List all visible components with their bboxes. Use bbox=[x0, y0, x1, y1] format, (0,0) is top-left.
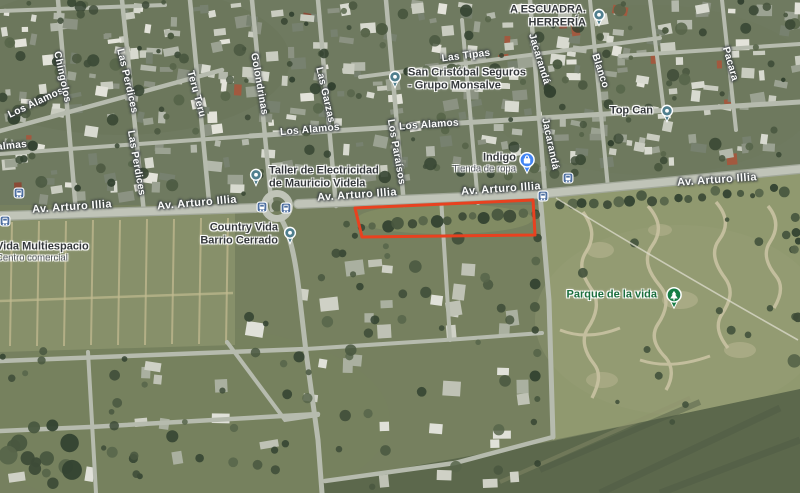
street-label: almas bbox=[0, 139, 28, 153]
place-marker-icon[interactable] bbox=[592, 8, 607, 27]
poi-label-country-vida[interactable]: Country VidaBarrio Cerrado bbox=[200, 221, 278, 246]
street-label: Los Alamos bbox=[280, 122, 341, 138]
street-label: Golondrinas bbox=[248, 52, 270, 116]
bus-stop-icon[interactable] bbox=[257, 202, 268, 213]
poi-label-top-can[interactable]: Top Can bbox=[610, 105, 653, 118]
street-label: Av. Arturo Illia bbox=[677, 171, 758, 189]
poi-label-indigo[interactable]: IndigoTienda de ropa bbox=[452, 151, 516, 174]
bus-stop-icon[interactable] bbox=[281, 203, 292, 214]
shopping-marker-icon[interactable] bbox=[518, 151, 537, 174]
street-label: Las Perdices bbox=[125, 130, 147, 197]
place-marker-icon[interactable] bbox=[660, 104, 675, 123]
place-marker-icon[interactable] bbox=[388, 70, 403, 89]
street-label: Los Alamos bbox=[399, 117, 459, 132]
poi-label-san-cristobal-seguros[interactable]: San Cristóbal Seguros- Grupo Monsalve bbox=[408, 66, 526, 91]
street-label: Av. Arturo Illia bbox=[157, 194, 238, 213]
bus-stop-icon[interactable] bbox=[538, 191, 549, 202]
street-label: Jacarandá bbox=[539, 117, 561, 171]
park-marker-icon[interactable] bbox=[665, 286, 684, 309]
street-label: Blanco bbox=[589, 52, 610, 89]
place-marker-icon[interactable] bbox=[283, 226, 298, 245]
street-label: Las Perdices bbox=[114, 48, 140, 115]
poi-label-parque-de-la-vida[interactable]: Parque de la vida bbox=[567, 289, 657, 302]
poi-label-taller-electricidad[interactable]: Taller de Electricidadde Mauricio Videla bbox=[269, 164, 379, 189]
street-label: Jacarandá bbox=[526, 32, 552, 86]
place-marker-icon[interactable] bbox=[249, 168, 264, 187]
map-canvas[interactable]: Av. Arturo IlliaAv. Arturo IlliaAv. Artu… bbox=[0, 0, 800, 493]
bus-stop-icon[interactable] bbox=[0, 216, 11, 227]
street-label: Av. Arturo Illia bbox=[461, 180, 542, 198]
poi-label-escuadra-herreria[interactable]: A ESCUADRA.HERRERÍA bbox=[510, 3, 586, 28]
street-label: Las Garzas bbox=[313, 66, 337, 124]
street-label: Las Tipas bbox=[441, 48, 491, 65]
street-label: Pacara bbox=[720, 46, 740, 83]
map-labels-layer: Av. Arturo IlliaAv. Arturo IlliaAv. Artu… bbox=[0, 0, 800, 493]
bus-stop-icon[interactable] bbox=[563, 173, 574, 184]
street-label: Los Alamos bbox=[7, 85, 66, 120]
street-label: Av. Arturo Illia bbox=[32, 198, 113, 216]
bus-stop-icon[interactable] bbox=[14, 188, 25, 199]
street-label: Teru Teru bbox=[185, 70, 208, 119]
poi-label-vida-multiespacio[interactable]: Vida MultiespacioCentro comercial bbox=[0, 240, 89, 263]
